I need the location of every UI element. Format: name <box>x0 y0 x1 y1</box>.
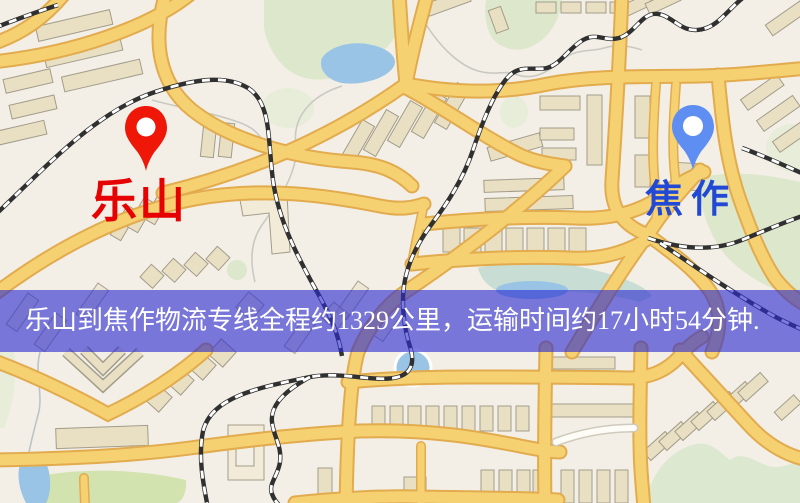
origin-pin-icon <box>125 106 167 171</box>
route-info-text: 乐山到焦作物流专线全程约1329公里，运输时间约17小时54分钟. <box>0 290 760 352</box>
origin-city-label: 乐山 <box>91 175 187 227</box>
map-canvas[interactable]: 乐山 焦作 <box>0 0 800 503</box>
origin-pin-hole <box>137 118 156 137</box>
route-info-banner: 乐山到焦作物流专线全程约1329公里，运输时间约17小时54分钟. <box>0 290 800 352</box>
origin-marker[interactable] <box>125 106 167 171</box>
destination-pin-hole <box>683 116 703 136</box>
destination-city-label: 焦作 <box>645 179 737 221</box>
map-viewport[interactable]: 乐山 焦作 乐山到焦作物流专线全程约1329公里，运输时间约17小时54分钟. <box>0 0 800 503</box>
